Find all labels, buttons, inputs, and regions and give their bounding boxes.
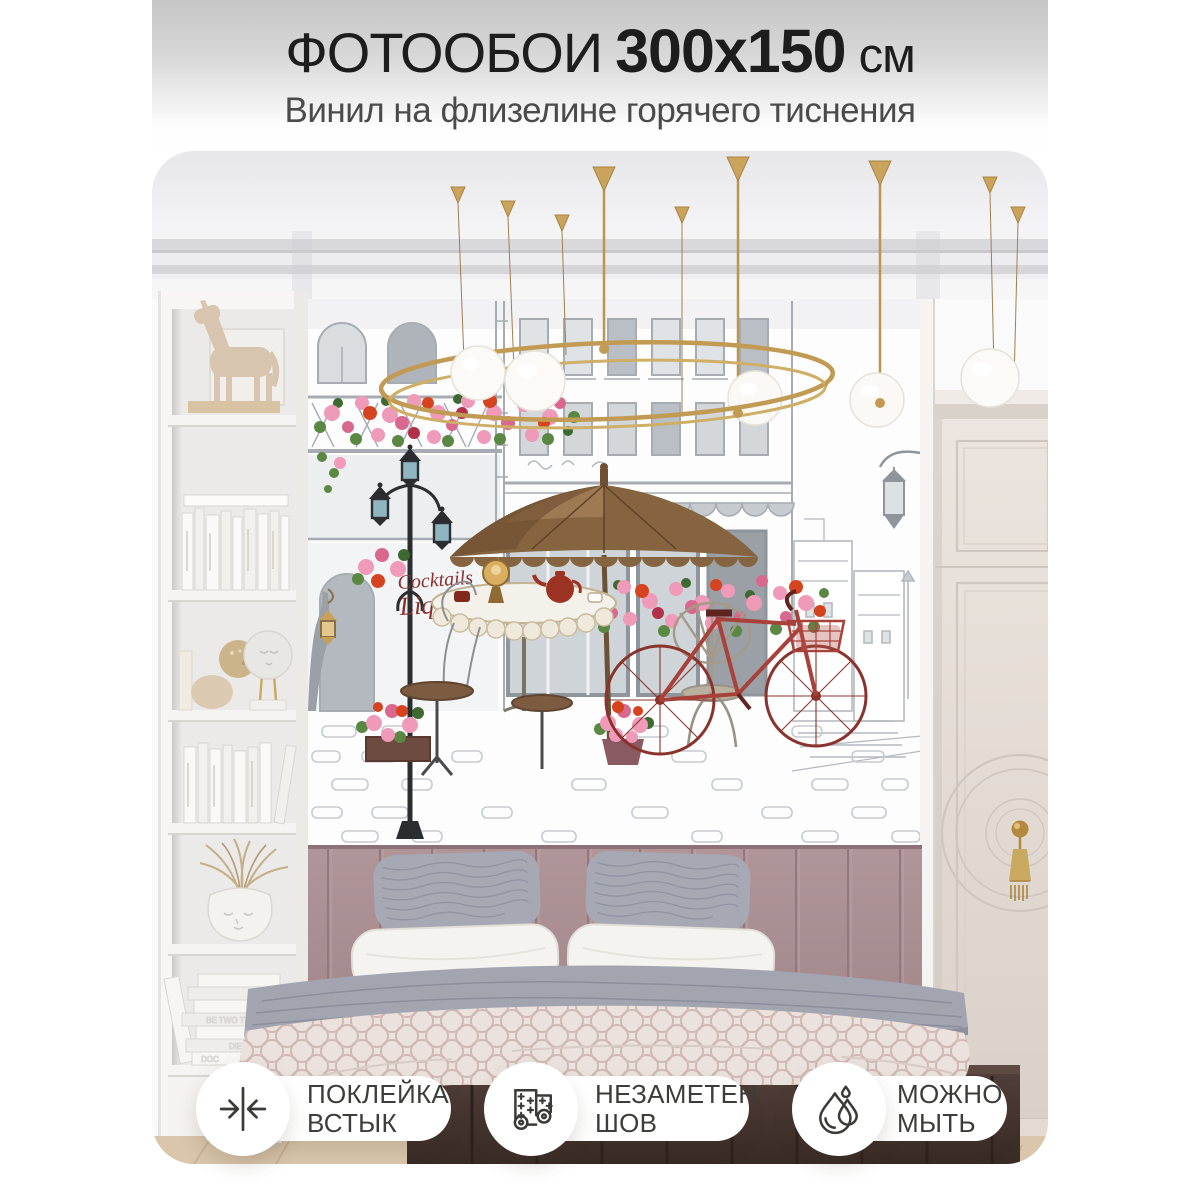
title-size: 300х150 (615, 20, 845, 82)
product-card: ФОТООБОИ 300х150 см Винил на флизелине г… (0, 0, 1200, 1200)
header-band: ФОТООБОИ 300х150 см Винил на флизелине г… (152, 0, 1048, 150)
book-title-doc: DOC (201, 1055, 219, 1064)
badge-label-line1: НЕЗАМЕТЕН (595, 1080, 757, 1109)
badge-circle (792, 1062, 886, 1156)
badge-label-line2: ВСТЫК (307, 1109, 449, 1138)
gray-pillow-left (373, 850, 542, 932)
badge-label-line2: МЫТЬ (897, 1109, 1003, 1138)
badge-circle (484, 1062, 578, 1156)
product-title: ФОТООБОИ 300х150 см (285, 20, 915, 82)
title-unit: см (859, 32, 915, 82)
badge-label-line1: МОЖНО (897, 1080, 1003, 1109)
room-photo: Cocktails Liqueurs (152, 151, 1048, 1164)
title-prefix: ФОТООБОИ (285, 24, 602, 81)
product-subtitle: Винил на флизелине горячего тиснения (285, 91, 916, 131)
bedroom-scene-illustration: Cocktails Liqueurs (152, 151, 1048, 1164)
badge-label: ПОКЛЕЙКА ВСТЫК (307, 1080, 449, 1138)
badge-label-line2: ШОВ (595, 1109, 757, 1138)
badge-label: НЕЗАМЕТЕН ШОВ (595, 1080, 757, 1138)
wallpaper-rolls-icon (505, 1083, 557, 1135)
badge-label: МОЖНО МЫТЬ (897, 1080, 1003, 1138)
gray-pillow-right (585, 850, 752, 932)
seam-arrows-icon (217, 1083, 269, 1135)
badge-circle (196, 1062, 290, 1156)
badge-label-line1: ПОКЛЕЙКА (307, 1080, 449, 1109)
water-drop-icon (813, 1083, 865, 1135)
